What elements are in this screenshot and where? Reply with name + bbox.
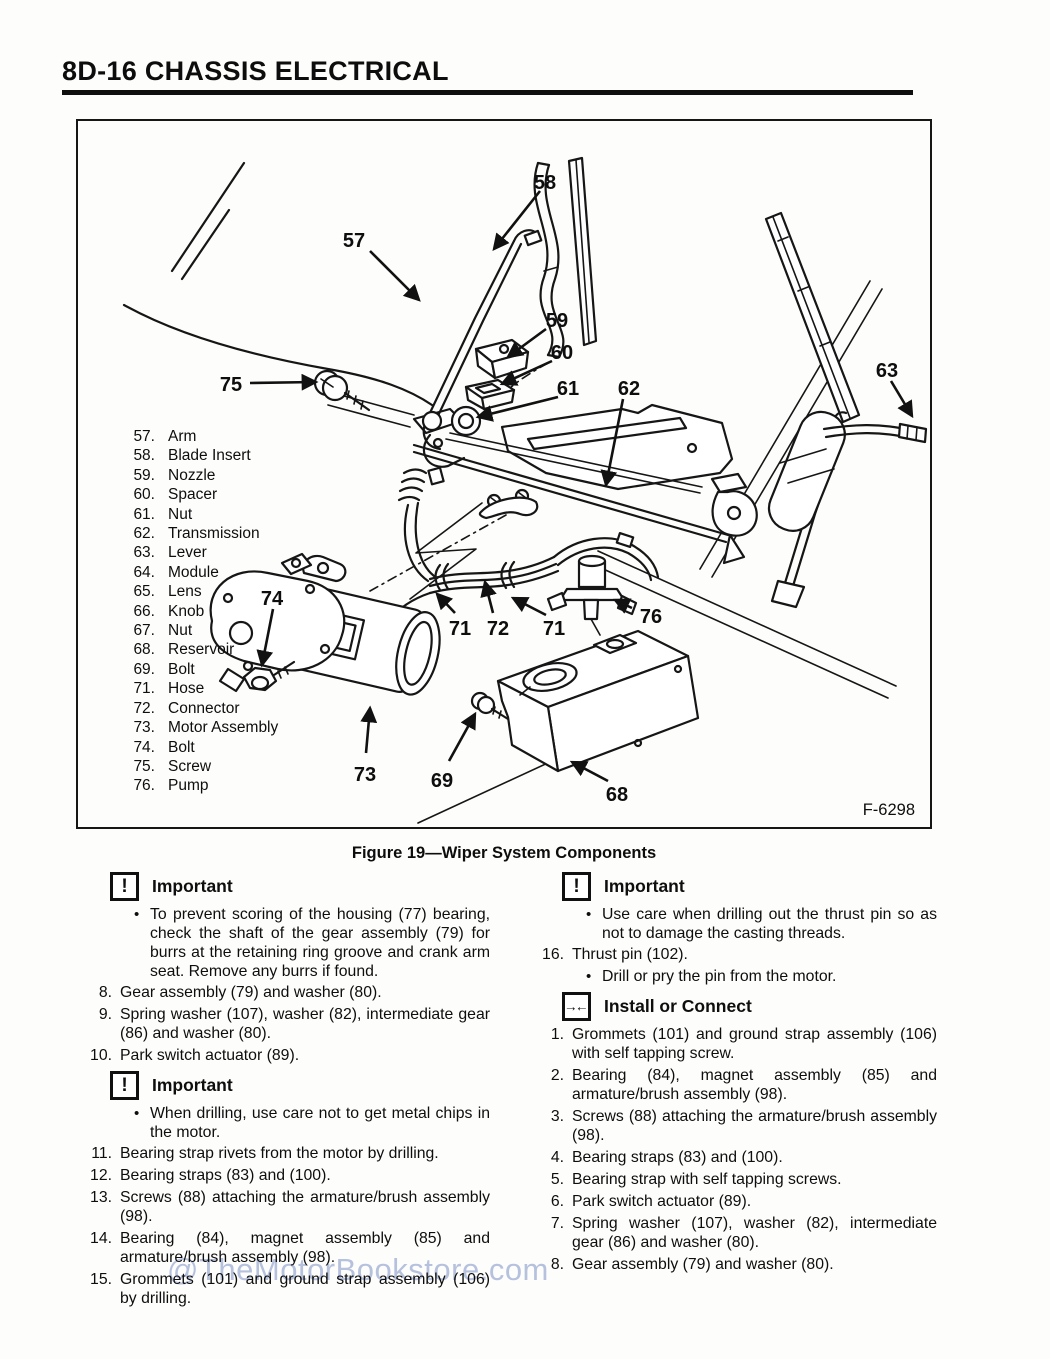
step-item: 10.Park switch actuator (89). — [86, 1046, 490, 1065]
part-label: Connector — [168, 699, 240, 718]
bullet-note: •When drilling, use care not to get meta… — [134, 1104, 490, 1142]
parts-list-row: 73.Motor Assembly — [124, 718, 324, 737]
part-label: Nut — [168, 505, 192, 524]
part-label: Hose — [168, 679, 204, 698]
parts-list-row: 64.Module — [124, 563, 324, 582]
step-text: Grommets (101) and ground strap assembly… — [572, 1025, 937, 1063]
part-number: 75. — [124, 757, 155, 776]
part-label: Module — [168, 563, 219, 582]
bullet-text: When drilling, use care not to get metal… — [150, 1104, 490, 1142]
step-text: Screws (88) attaching the armature/brush… — [572, 1107, 937, 1145]
figure-19-box: 58 57 59 60 61 62 63 75 74 71 72 71 76 7… — [76, 119, 932, 829]
part-number: 72. — [124, 699, 155, 718]
step-number: 8. — [538, 1255, 564, 1274]
title-rule — [62, 90, 913, 95]
step-number: 7. — [538, 1214, 564, 1252]
callout-75: 75 — [220, 374, 242, 396]
step-text: Bearing strap with self tapping screws. — [572, 1170, 937, 1189]
callout-76: 76 — [640, 606, 662, 628]
step-number: 12. — [86, 1166, 112, 1185]
part-number: 68. — [124, 640, 155, 659]
step-item: 14.Bearing (84), magnet assembly (85) an… — [86, 1229, 490, 1267]
step-item: 1.Grommets (101) and ground strap assemb… — [538, 1025, 937, 1063]
step-number: 6. — [538, 1192, 564, 1211]
install-connect-icon: →← — [562, 992, 591, 1021]
callout-61: 61 — [557, 378, 579, 400]
nut — [452, 407, 480, 435]
step-text: Thrust pin (102). — [572, 945, 937, 964]
bullet-icon: • — [586, 905, 602, 943]
important-icon: ! — [110, 1071, 139, 1100]
bullet-icon: • — [134, 905, 150, 981]
figure-code: F-6298 — [863, 801, 915, 820]
step-number: 3. — [538, 1107, 564, 1145]
callout-73: 73 — [354, 764, 376, 786]
callout-68: 68 — [606, 784, 628, 806]
parts-list-row: 68.Reservoir — [124, 640, 324, 659]
part-number: 59. — [124, 466, 155, 485]
step-text: Bearing straps (83) and (100). — [572, 1148, 937, 1167]
part-label: Nut — [168, 621, 192, 640]
step-text: Gear assembly (79) and washer (80). — [572, 1255, 937, 1274]
step-item: 12.Bearing straps (83) and (100). — [86, 1166, 490, 1185]
part-label: Bolt — [168, 660, 195, 679]
step-number: 11. — [86, 1144, 112, 1163]
step-item: 16.Thrust pin (102). — [538, 945, 937, 964]
parts-list-row: 71.Hose — [124, 679, 324, 698]
part-number: 71. — [124, 679, 155, 698]
callout-58: 58 — [534, 172, 556, 194]
lever — [762, 405, 926, 537]
step-item: 6.Park switch actuator (89). — [538, 1192, 937, 1211]
callout-71b: 71 — [543, 618, 565, 640]
step-item: 2.Bearing (84), magnet assembly (85) and… — [538, 1066, 937, 1104]
section-title: Install or Connect — [604, 997, 752, 1016]
install-or-connect-header: →←Install or Connect — [562, 991, 937, 1021]
bullet-note: •To prevent scoring of the housing (77) … — [134, 905, 490, 981]
part-label: Arm — [168, 427, 196, 446]
parts-list-row: 65.Lens — [124, 582, 324, 601]
reservoir — [498, 631, 698, 771]
part-number: 61. — [124, 505, 155, 524]
part-number: 64. — [124, 563, 155, 582]
procedure-columns: !Important•To prevent scoring of the hou… — [86, 871, 937, 1311]
section-title: Important — [604, 877, 685, 896]
step-item: 11.Bearing strap rivets from the motor b… — [86, 1144, 490, 1163]
step-item: 5.Bearing strap with self tapping screws… — [538, 1170, 937, 1189]
step-text: Spring washer (107), washer (82), interm… — [120, 1005, 490, 1043]
parts-list-row: 76.Pump — [124, 776, 324, 795]
part-number: 60. — [124, 485, 155, 504]
step-number: 14. — [86, 1229, 112, 1267]
callout-69: 69 — [431, 770, 453, 792]
important-header: !Important — [110, 1070, 490, 1100]
cowl-panel — [502, 405, 732, 489]
step-number: 16. — [538, 945, 564, 964]
section-title: Important — [152, 877, 233, 896]
parts-list-row: 74.Bolt — [124, 738, 324, 757]
step-item: 3.Screws (88) attaching the armature/bru… — [538, 1107, 937, 1145]
step-text: Screws (88) attaching the armature/brush… — [120, 1188, 490, 1226]
step-item: 8.Gear assembly (79) and washer (80). — [538, 1255, 937, 1274]
parts-list-row: 62.Transmission — [124, 524, 324, 543]
wiper-blade-right — [766, 213, 859, 422]
step-text: Bearing (84), magnet assembly (85) and a… — [120, 1229, 490, 1267]
parts-list-row: 72.Connector — [124, 699, 324, 718]
callout-63: 63 — [876, 360, 898, 382]
step-text: Bearing straps (83) and (100). — [120, 1166, 490, 1185]
callout-62: 62 — [618, 378, 640, 400]
part-number: 69. — [124, 660, 155, 679]
section-title: Important — [152, 1076, 233, 1095]
step-number: 9. — [86, 1005, 112, 1043]
callout-71a: 71 — [449, 618, 471, 640]
part-label: Screw — [168, 757, 211, 776]
part-label: Spacer — [168, 485, 217, 504]
part-label: Lens — [168, 582, 202, 601]
part-label: Bolt — [168, 738, 195, 757]
figure-caption: Figure 19—Wiper System Components — [76, 844, 932, 863]
part-number: 73. — [124, 718, 155, 737]
part-label: Nozzle — [168, 466, 215, 485]
bullet-note: •Use care when drilling out the thrust p… — [586, 905, 937, 943]
callout-59: 59 — [546, 310, 568, 332]
bullet-text: Use care when drilling out the thrust pi… — [602, 905, 937, 943]
part-number: 62. — [124, 524, 155, 543]
part-number: 63. — [124, 543, 155, 562]
nozzle — [476, 340, 528, 378]
step-text: Bearing strap rivets from the motor by d… — [120, 1144, 490, 1163]
step-item: 13.Screws (88) attaching the armature/br… — [86, 1188, 490, 1226]
parts-list-row: 58.Blade Insert — [124, 446, 324, 465]
important-icon: ! — [562, 872, 591, 901]
manual-page: { "page": { "header": "8D-16 CHASSIS ELE… — [0, 0, 1050, 1359]
part-label: Pump — [168, 776, 209, 795]
left-column: !Important•To prevent scoring of the hou… — [86, 871, 490, 1311]
bullet-text: Drill or pry the pin from the motor. — [602, 967, 937, 986]
step-number: 13. — [86, 1188, 112, 1226]
hose-boot — [399, 470, 434, 582]
bullet-text: To prevent scoring of the housing (77) b… — [150, 905, 490, 981]
parts-list-row: 66.Knob — [124, 602, 324, 621]
step-item: 9.Spring washer (107), washer (82), inte… — [86, 1005, 490, 1043]
important-header: !Important — [562, 871, 937, 901]
part-label: Knob — [168, 602, 204, 621]
step-item: 8.Gear assembly (79) and washer (80). — [86, 983, 490, 1002]
bullet-note: •Drill or pry the pin from the motor. — [586, 967, 937, 986]
step-text: Park switch actuator (89). — [120, 1046, 490, 1065]
parts-list-row: 69.Bolt — [124, 660, 324, 679]
step-number: 15. — [86, 1270, 112, 1308]
right-column: !Important•Use care when drilling out th… — [538, 871, 937, 1311]
step-number: 5. — [538, 1170, 564, 1189]
callout-57: 57 — [343, 230, 365, 252]
part-number: 65. — [124, 582, 155, 601]
spacer — [466, 380, 514, 409]
part-number: 76. — [124, 776, 155, 795]
step-text: Gear assembly (79) and washer (80). — [120, 983, 490, 1002]
part-label: Motor Assembly — [168, 718, 278, 737]
parts-list-row: 63.Lever — [124, 543, 324, 562]
figure-parts-list: 57.Arm58.Blade Insert59.Nozzle60.Spacer6… — [124, 427, 324, 796]
part-label: Lever — [168, 543, 207, 562]
important-header: !Important — [110, 871, 490, 901]
part-number: 67. — [124, 621, 155, 640]
callout-72: 72 — [487, 618, 509, 640]
part-number: 74. — [124, 738, 155, 757]
step-item: 15.Grommets (101) and ground strap assem… — [86, 1270, 490, 1308]
callout-60: 60 — [551, 342, 573, 364]
parts-list-row: 61.Nut — [124, 505, 324, 524]
parts-list-row: 75.Screw — [124, 757, 324, 776]
bullet-icon: • — [586, 967, 602, 986]
parts-list-row: 57.Arm — [124, 427, 324, 446]
step-text: Grommets (101) and ground strap assembly… — [120, 1270, 490, 1308]
step-item: 4.Bearing straps (83) and (100). — [538, 1148, 937, 1167]
step-text: Park switch actuator (89). — [572, 1192, 937, 1211]
step-number: 8. — [86, 983, 112, 1002]
parts-list-row: 67.Nut — [124, 621, 324, 640]
bullet-icon: • — [134, 1104, 150, 1142]
step-item: 7.Spring washer (107), washer (82), inte… — [538, 1214, 937, 1252]
step-number: 4. — [538, 1148, 564, 1167]
part-number: 66. — [124, 602, 155, 621]
part-label: Transmission — [168, 524, 260, 543]
part-label: Reservoir — [168, 640, 234, 659]
page-title: 8D-16 CHASSIS ELECTRICAL — [62, 56, 449, 87]
step-text: Spring washer (107), washer (82), interm… — [572, 1214, 937, 1252]
part-number: 57. — [124, 427, 155, 446]
step-number: 10. — [86, 1046, 112, 1065]
part-number: 58. — [124, 446, 155, 465]
step-text: Bearing (84), magnet assembly (85) and a… — [572, 1066, 937, 1104]
important-icon: ! — [110, 872, 139, 901]
step-number: 1. — [538, 1025, 564, 1063]
connector-clamp — [480, 490, 537, 518]
parts-list-row: 60.Spacer — [124, 485, 324, 504]
windshield-lines — [124, 163, 432, 405]
step-number: 2. — [538, 1066, 564, 1104]
parts-list-row: 59.Nozzle — [124, 466, 324, 485]
part-label: Blade Insert — [168, 446, 251, 465]
